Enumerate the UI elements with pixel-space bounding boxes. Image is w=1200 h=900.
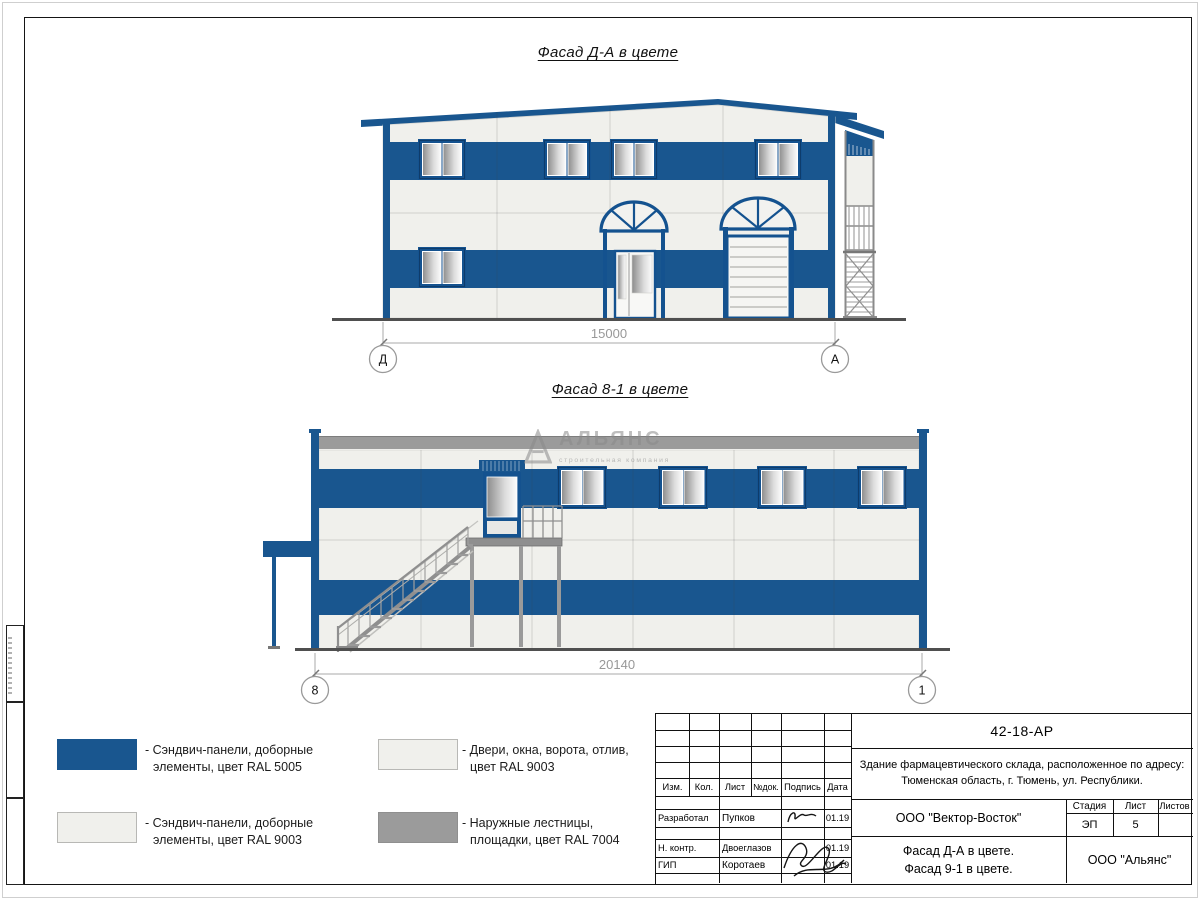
- corner-trim-right: [828, 116, 835, 318]
- legend-swatch-ral7004: [378, 812, 458, 843]
- facade-da-drawing: 15000 Д А: [332, 99, 906, 373]
- fire-escape-tower: [843, 130, 877, 319]
- facade-da-title-text: Фасад Д-А в цвете: [538, 44, 678, 61]
- dimension-da: 15000 Д А: [370, 322, 849, 373]
- legend-label: - Сэндвич-панели, доборные элементы, цве…: [145, 742, 313, 777]
- legend-label: - Наружные лестницы, площадки, цвет RAL …: [462, 815, 620, 850]
- corner-post-right: [919, 432, 927, 649]
- window: [418, 247, 466, 288]
- legend-swatch-ral9003-doors: [378, 739, 458, 770]
- corner-post-left: [311, 432, 319, 649]
- sheets-label: Листов: [1158, 799, 1191, 813]
- window: [418, 139, 466, 180]
- col-podpis: Подпись: [781, 778, 824, 796]
- staff-name: Пупков: [722, 809, 780, 827]
- role-label: Разработал: [658, 809, 718, 827]
- platform-post: [557, 546, 561, 647]
- window: [610, 139, 658, 180]
- title-block: Изм. Кол. Лист №док. Подпись Дата Разраб…: [655, 713, 1192, 885]
- designer-company: ООО "Вектор-Восток": [851, 799, 1066, 836]
- staff-name: Двоеглазов: [722, 839, 780, 857]
- legend-swatch-ral5005: [57, 739, 137, 770]
- role-label: Н. контр.: [658, 839, 718, 857]
- legend-swatch-ral9003-panels: [57, 812, 137, 843]
- legend-label: - Сэндвич-панели, доборные элементы, цве…: [145, 815, 313, 850]
- platform-post: [470, 546, 474, 647]
- col-data: Дата: [824, 778, 851, 796]
- staff-name: Коротаев: [722, 857, 780, 873]
- col-list: Лист: [719, 778, 751, 796]
- stage-value: ЭП: [1066, 813, 1113, 836]
- landing-platform: [466, 538, 562, 546]
- blue-stripe-upper: [319, 469, 919, 508]
- corner-trim-left: [383, 124, 390, 318]
- side-canopy: [263, 541, 311, 649]
- project-address: Здание фармацевтического склада, располо…: [856, 748, 1188, 799]
- document-code: 42-18-АР: [851, 714, 1193, 748]
- facade-81-title: Фасад 8-1 в цвете: [460, 381, 780, 398]
- signature-razrabotal: [788, 813, 816, 822]
- window: [543, 139, 591, 180]
- dimension-text: 15000: [591, 326, 627, 341]
- signature-gip: [784, 843, 846, 876]
- sheets-total: [1158, 813, 1191, 836]
- sheet-label: Лист: [1113, 799, 1158, 813]
- door-canopy: [479, 460, 525, 472]
- dimension-text: 20140: [599, 657, 635, 672]
- gate-portal: [721, 198, 795, 318]
- role-label: ГИП: [658, 857, 718, 873]
- window: [857, 466, 907, 509]
- stage-label: Стадия: [1066, 799, 1113, 813]
- roof-band: [311, 437, 927, 449]
- axis-label: 8: [312, 684, 319, 698]
- col-izm: Изм.: [656, 778, 689, 796]
- col-ndok: №док.: [751, 778, 781, 796]
- axis-label: Д: [379, 353, 388, 367]
- drawing-sheet: 15000 Д А: [0, 0, 1200, 900]
- facade-81-title-text: Фасад 8-1 в цвете: [552, 381, 689, 398]
- axis-label: А: [831, 353, 840, 367]
- drawing-title: Фасад Д-А в цвете. Фасад 9-1 в цвете.: [851, 836, 1066, 884]
- sheet-number: 5: [1113, 813, 1158, 836]
- facade-81-drawing: 20140 8 1: [263, 429, 950, 704]
- col-kol: Кол.: [689, 778, 719, 796]
- legend-label: - Двери, окна, ворота, отлив, цвет RAL 9…: [462, 742, 629, 777]
- window: [757, 466, 807, 509]
- signatures: [778, 804, 854, 884]
- window: [658, 466, 708, 509]
- platform-post: [519, 546, 523, 647]
- org-name: ООО "Альянс": [1066, 836, 1193, 884]
- window: [557, 466, 607, 509]
- axis-label: 1: [919, 684, 926, 698]
- dimension-81: 20140 8 1: [302, 653, 936, 704]
- facade-da-title: Фасад Д-А в цвете: [448, 44, 768, 61]
- window: [754, 139, 802, 180]
